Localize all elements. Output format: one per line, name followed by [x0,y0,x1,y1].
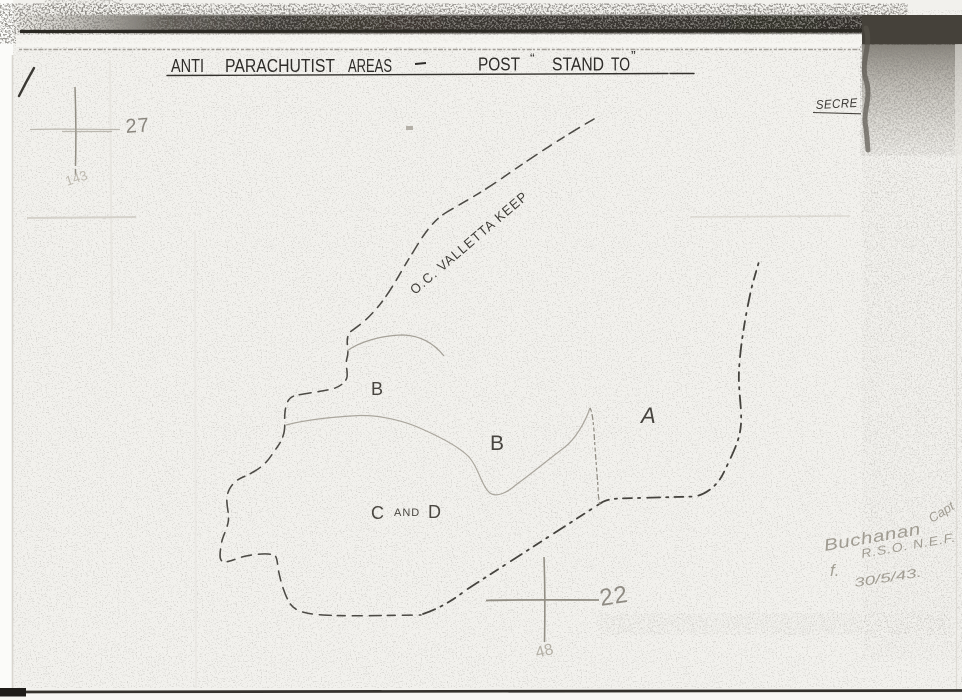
svg-text:D: D [428,502,441,522]
svg-text:C: C [371,503,384,523]
svg-text:A: A [639,403,656,428]
svg-text:27: 27 [125,114,151,138]
svg-text:STAND: STAND [552,55,604,75]
svg-text:”: ” [631,48,636,64]
svg-text:B: B [371,379,383,399]
svg-text:TO: TO [611,55,630,75]
svg-text:“: “ [530,50,535,66]
svg-text:f.: f. [830,561,839,580]
svg-text:POST: POST [478,55,520,75]
svg-text:SECRE: SECRE [815,96,858,112]
svg-text:22: 22 [598,581,631,612]
svg-text:ANTI: ANTI [171,56,204,76]
svg-text:AND: AND [394,507,420,519]
svg-text:PARACHUTIST: PARACHUTIST [225,56,335,76]
svg-text:AREAS: AREAS [348,56,392,76]
svg-text:B: B [490,432,504,455]
